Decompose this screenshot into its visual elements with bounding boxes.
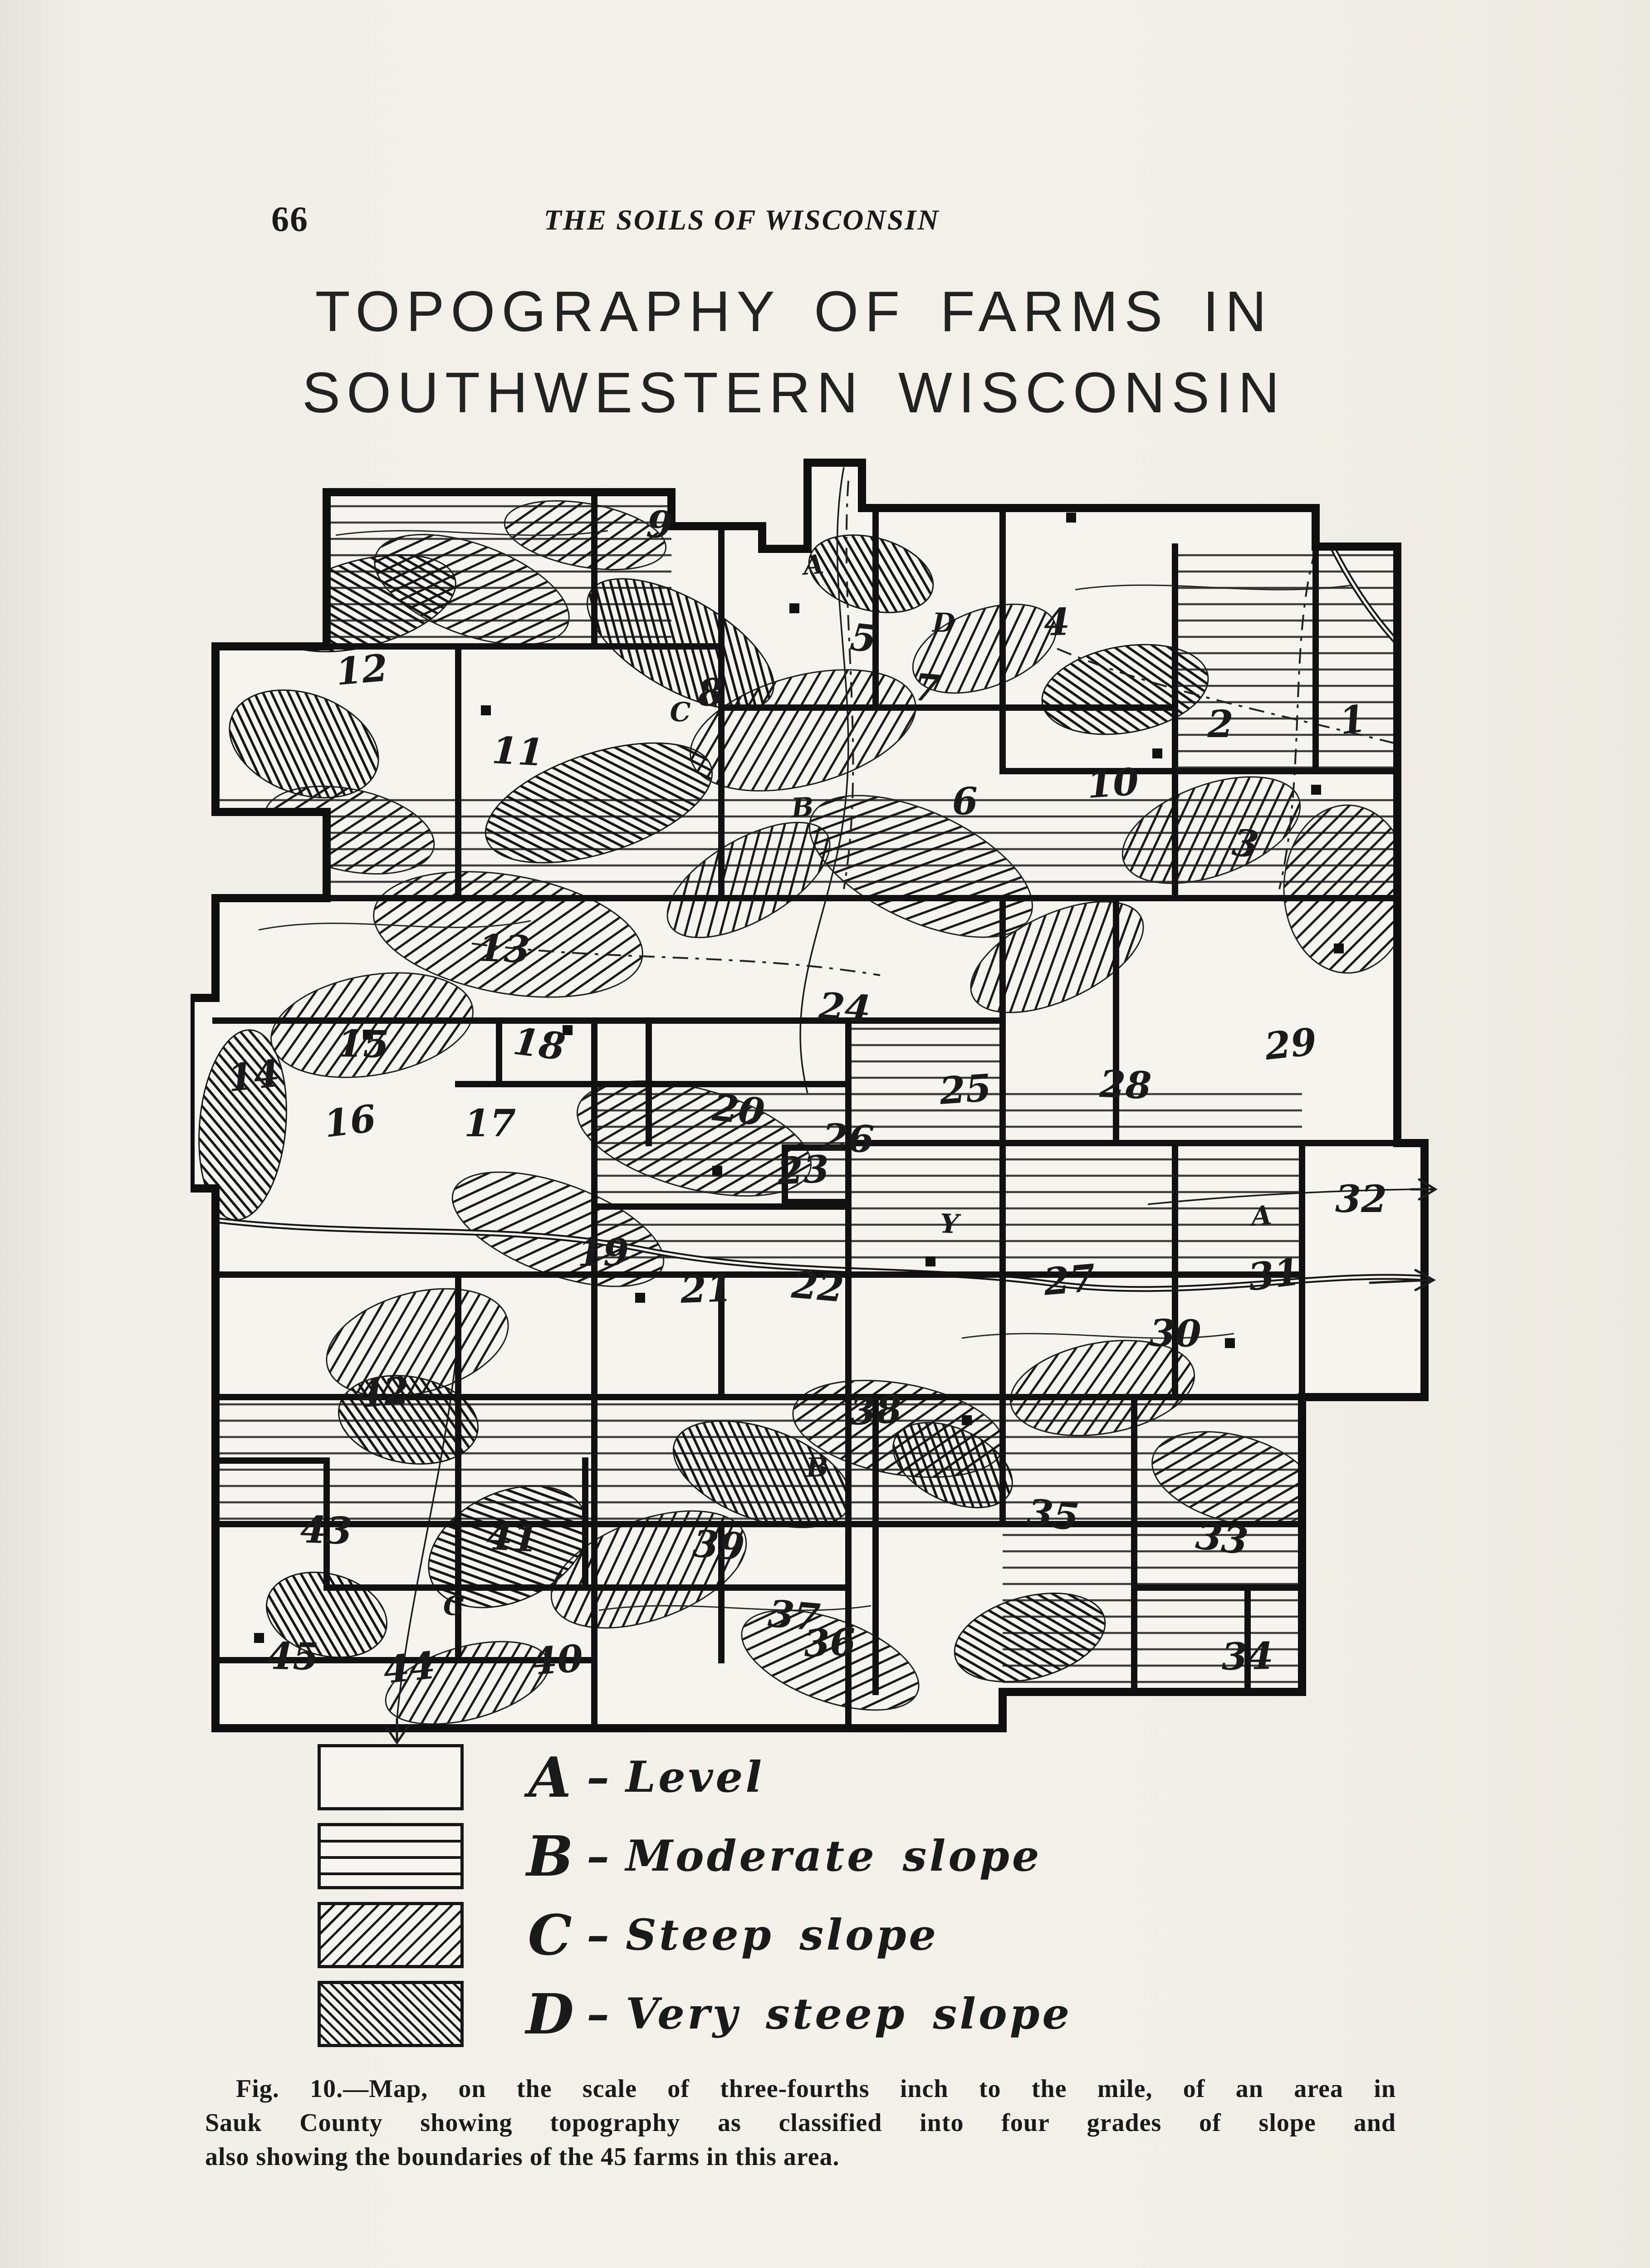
legend-letter: B [516,1823,584,1889]
legend-swatch-b-icon [318,1823,464,1889]
legend-letter: A [516,1745,584,1810]
farm-number-label: 26 [821,1115,875,1162]
legend-letter: D [516,1981,584,2047]
farm-number-label: 43 [299,1508,353,1553]
legend-letter: C [516,1902,584,1968]
farm-number-label: 18 [511,1020,568,1069]
farm-number-label: 8 [696,670,725,715]
figure-caption: Fig. 10.—Map, on the scale of three-four… [205,2072,1396,2174]
legend-separator: – [587,1750,609,1804]
map-legend: A–LevelB–Moderate slopeC–Steep slopeD–Ve… [318,1741,1072,2057]
farm-number-label: 3 [1230,821,1261,867]
farm-number-label: 9 [645,502,674,547]
farm-number-label: 33 [1194,1514,1250,1564]
farm-number-label: 14 [225,1051,282,1100]
farm-number-label: 16 [322,1097,378,1146]
farm-number-label: 7 [912,665,941,711]
farm-number-label: 45 [267,1634,319,1679]
farm-number-label: 12 [334,646,390,694]
figure-title: TOPOGRAPHY OF FARMS IN SOUTHWESTERN WISC… [145,271,1443,434]
figure-title-line-1: TOPOGRAPHY OF FARMS IN [145,271,1443,352]
legend-row-c: C–Steep slope [318,1899,1072,1971]
farm-number-label: 31 [1246,1250,1302,1300]
farm-number-label: 39 [691,1522,746,1569]
legend-separator: – [587,1908,609,1962]
farm-number-label: 15 [337,1022,390,1066]
farm-number-label: 10 [1086,760,1141,807]
legend-label: Steep slope [626,1910,939,1960]
book-page: 66 THE SOILS OF WISCONSIN TOPOGRAPHY OF … [0,0,1650,2268]
slope-class-letter-label: D [931,607,955,639]
farm-number-label: 2 [1207,703,1233,746]
figure-title-line-2: SOUTHWESTERN WISCONSIN [145,352,1443,434]
caption-line: also showing the boundaries of the 45 fa… [205,2140,1396,2174]
farm-number-label: 32 [1335,1178,1387,1221]
farm-number-label: 17 [464,1102,516,1145]
farm-number-label: 42 [356,1369,411,1417]
legend-swatch-c-icon [318,1902,464,1968]
farm-number-label: 35 [1025,1491,1081,1539]
farm-number-label: 11 [491,728,545,775]
farm-number-label: 29 [1262,1020,1319,1069]
slope-class-letter-label: B [790,792,815,824]
caption-line: Sauk County showing topography as classi… [205,2106,1396,2140]
farm-number-label: 44 [381,1643,437,1692]
slope-class-letter-label: A [1248,1200,1273,1232]
farm-number-label: 22 [789,1263,845,1311]
farm-number-label: 19 [577,1231,630,1275]
farm-number-label: 25 [938,1066,993,1113]
legend-label: Moderate slope [626,1831,1042,1881]
running-header: THE SOILS OF WISCONSIN [408,203,1075,237]
farm-number-label: 38 [849,1388,903,1434]
map-figure-svg: 1234567891011121314151617181920212223242… [191,454,1443,1755]
farm-number-label: 40 [530,1637,585,1684]
legend-separator: – [587,1987,609,2041]
farm-number-label: 34 [1221,1634,1274,1679]
farm-number-label: 5 [848,615,879,661]
legend-label: Very steep slope [626,1989,1072,2039]
slope-class-letter-label: C [443,1590,464,1621]
farm-number-label: 13 [477,926,530,972]
legend-row-b: B–Moderate slope [318,1820,1072,1892]
farm-number-label: 28 [1098,1062,1152,1108]
page-number: 66 [271,199,308,240]
legend-label: Level [626,1752,764,1802]
legend-swatch-d-icon [318,1981,464,2047]
farm-number-label: 24 [817,984,872,1031]
farm-number-label: 20 [710,1085,767,1134]
legend-separator: – [587,1829,609,1883]
farm-number-label: 6 [951,779,979,824]
farm-number-label: 27 [1042,1256,1097,1304]
farm-number-label: 1 [1337,697,1368,743]
farm-topography-map: 1234567891011121314151617181920212223242… [191,454,1443,1755]
farm-number-label: 30 [1149,1311,1202,1356]
legend-swatch-a-icon [318,1744,464,1810]
slope-class-letter-label: C [670,697,691,728]
farm-number-label: 41 [485,1515,539,1561]
caption-line: Fig. 10.—Map, on the scale of three-four… [205,2072,1396,2106]
legend-row-a: A–Level [318,1741,1072,1813]
legend-row-d: D–Very steep slope [318,1978,1072,2050]
farm-number-label: 37 [766,1592,822,1640]
slope-class-letter-label: B [805,1452,829,1483]
farm-number-label: 4 [1043,601,1070,645]
farm-number-label: 21 [679,1266,733,1312]
